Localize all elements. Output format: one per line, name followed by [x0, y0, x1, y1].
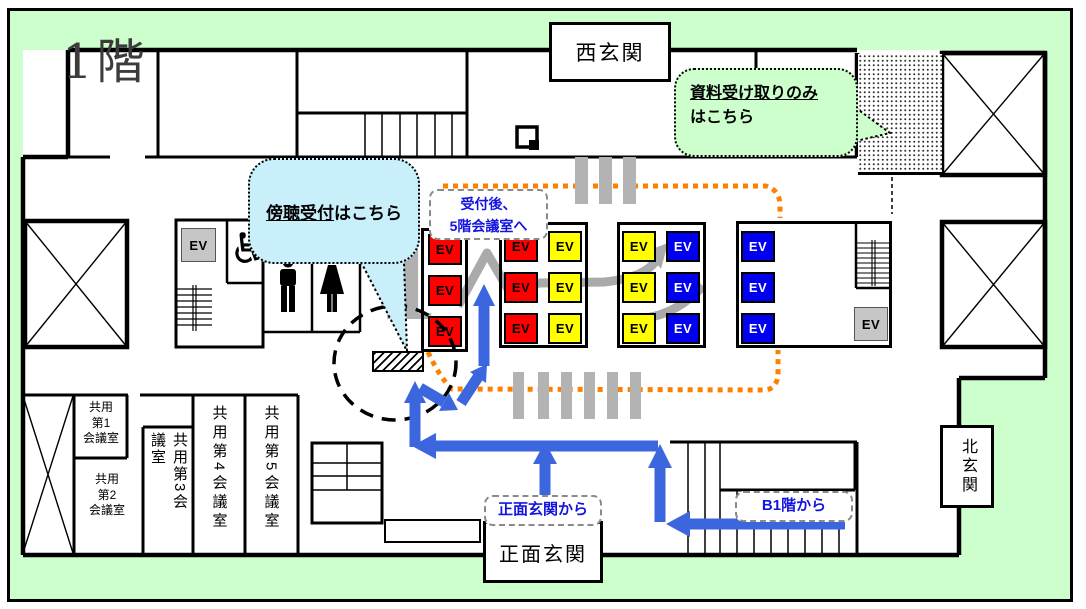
west-entrance-label: 西玄関 — [549, 22, 671, 82]
green-bubble-underlined-text: 資料受け取りのみ — [690, 85, 818, 102]
blue-bubble-underlined-text: 傍聴受付 — [266, 204, 334, 223]
route-to-corridor — [461, 377, 478, 403]
document-pickup-bubble: 資料受け取りのみ はこちら — [674, 68, 858, 157]
blue-bubble-suffix: はこちら — [334, 204, 402, 223]
green-bubble-line2: はこちら — [690, 106, 856, 130]
from-main-entrance-note: 正面玄関から — [484, 495, 602, 526]
north-entrance-text: 北玄関 — [955, 438, 979, 495]
blue-bubble-tail — [361, 262, 407, 351]
from-b1-note: B1階から — [735, 491, 853, 522]
main-entrance-text: 正面玄関 — [499, 538, 587, 567]
after-reception-line2: 5階会議室へ — [431, 216, 546, 238]
west-entrance-text: 西玄関 — [576, 37, 645, 67]
from-b1-text: B1階から — [762, 497, 826, 514]
green-bubble-tail — [856, 108, 890, 141]
observation-reception-bubble: 傍聴受付はこちら — [248, 158, 420, 264]
floor-map-page: 1階 1 EV EV EV EV EV EV EV EV EV EV EV EV… — [0, 0, 1086, 609]
north-entrance-label: 北玄関 — [940, 425, 994, 508]
from-main-entrance-text: 正面玄関から — [498, 501, 588, 518]
main-entrance-label: 正面玄関 — [483, 521, 603, 583]
after-reception-note: 受付後、 5階会議室へ — [429, 189, 548, 240]
after-reception-line1: 受付後、 — [431, 194, 546, 216]
